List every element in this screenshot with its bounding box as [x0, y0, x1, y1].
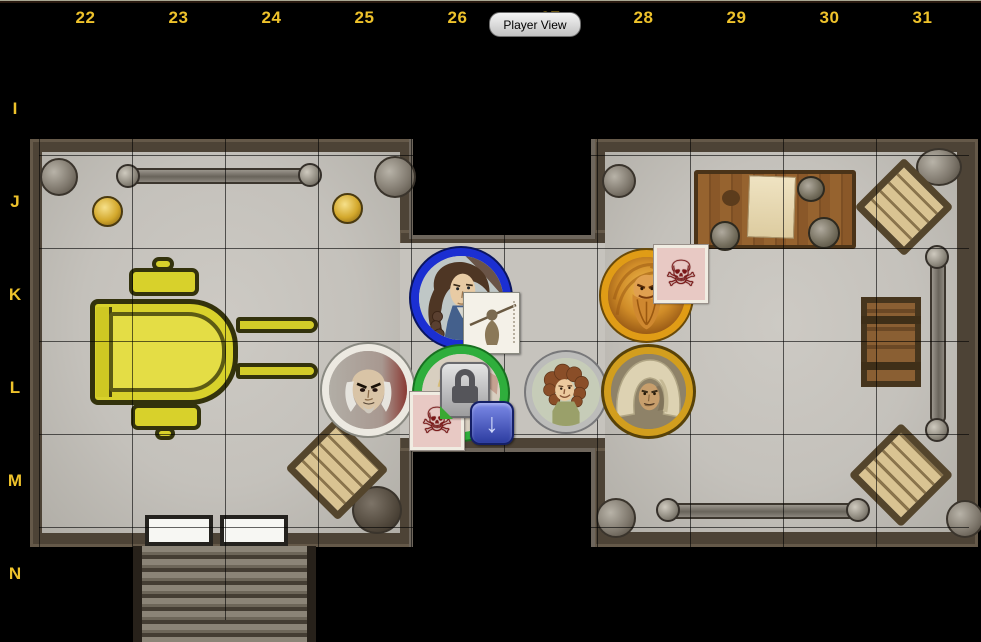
column-label-31: 31: [876, 8, 969, 28]
rail-knob: [846, 498, 870, 522]
piano-arm: [236, 317, 318, 333]
skull-glyph: ☠: [665, 256, 697, 292]
crate-band: [861, 316, 921, 324]
stone-mug: [797, 176, 825, 202]
piano-stool: [129, 268, 199, 296]
parchment-sheet: [747, 175, 796, 239]
row-label-I: I: [0, 62, 30, 155]
bench-rail: [668, 503, 860, 519]
token-hooded-man[interactable]: [604, 347, 693, 436]
lock-shackle: [455, 369, 475, 387]
lock-body: [452, 386, 478, 403]
column-label-30: 30: [783, 8, 876, 28]
corner-stone: [602, 164, 636, 198]
top-edge-line: [0, 0, 981, 3]
table-knot: [722, 190, 740, 206]
piano-arm: [236, 363, 318, 379]
column-label-22: 22: [39, 8, 132, 28]
rail-knob: [925, 245, 949, 269]
row-label-M: M: [0, 434, 30, 527]
bench-rail-vertical: [930, 260, 946, 424]
spear-figure-card-icon: [463, 292, 520, 354]
bench-rail: [128, 168, 310, 184]
portrait-art: [532, 358, 600, 426]
brass-lamp: [332, 193, 363, 224]
rail-knob: [116, 164, 140, 188]
column-label-23: 23: [132, 8, 225, 28]
rail-knob: [656, 498, 680, 522]
staircase: [133, 546, 316, 642]
row-label-N: N: [0, 527, 30, 620]
stone-mug: [808, 217, 840, 249]
stone-mug: [710, 221, 740, 251]
piano-lid: [109, 312, 226, 392]
column-label-29: 29: [690, 8, 783, 28]
rail-knob: [298, 163, 322, 187]
rail-knob: [925, 418, 949, 442]
portrait-hooded-man: [611, 354, 686, 429]
token-curly-halfling[interactable]: [526, 352, 606, 432]
double-door-left: [145, 515, 213, 546]
download-arrow-icon: ↓: [470, 401, 514, 445]
row-label-J: J: [0, 155, 30, 248]
token-locked[interactable]: ☠ ↓: [414, 346, 508, 440]
crate-band: [861, 362, 921, 370]
portrait-curly-halfling: [532, 358, 600, 426]
green-corner-flag: [440, 406, 453, 419]
row-label-L: L: [0, 341, 30, 434]
portrait-art: [611, 354, 686, 429]
portrait-art: [329, 351, 407, 429]
corner-stone: [374, 156, 416, 198]
wooden-crate: [861, 297, 921, 387]
vtt-map-view[interactable]: 22 23 24 25 26 27 28 29 30 31 I J K L M …: [0, 0, 981, 642]
brass-lamp: [92, 196, 123, 227]
void-notch-top: [409, 139, 595, 239]
corner-stone: [40, 158, 78, 196]
corner-stone: [946, 500, 981, 538]
double-door-right: [220, 515, 288, 546]
row-label-K: K: [0, 248, 30, 341]
piano-stool-knob: [152, 257, 174, 271]
token-wild-bearded-man[interactable]: ☠: [601, 250, 692, 341]
piano-stool-knob: [155, 427, 175, 440]
column-label-24: 24: [225, 8, 318, 28]
corner-stone: [596, 498, 636, 538]
spear-figure-art: [464, 293, 519, 353]
player-view-button[interactable]: Player View: [489, 12, 581, 37]
portrait-bald-villain: [329, 351, 407, 429]
token-braided-woman[interactable]: [411, 248, 511, 348]
void-notch-bottom: [409, 448, 595, 547]
column-label-28: 28: [597, 8, 690, 28]
column-label-25: 25: [318, 8, 411, 28]
token-bald-villain[interactable]: [322, 344, 414, 436]
skull-status-icon: ☠: [654, 245, 708, 303]
down-arrow-glyph: ↓: [485, 408, 499, 439]
